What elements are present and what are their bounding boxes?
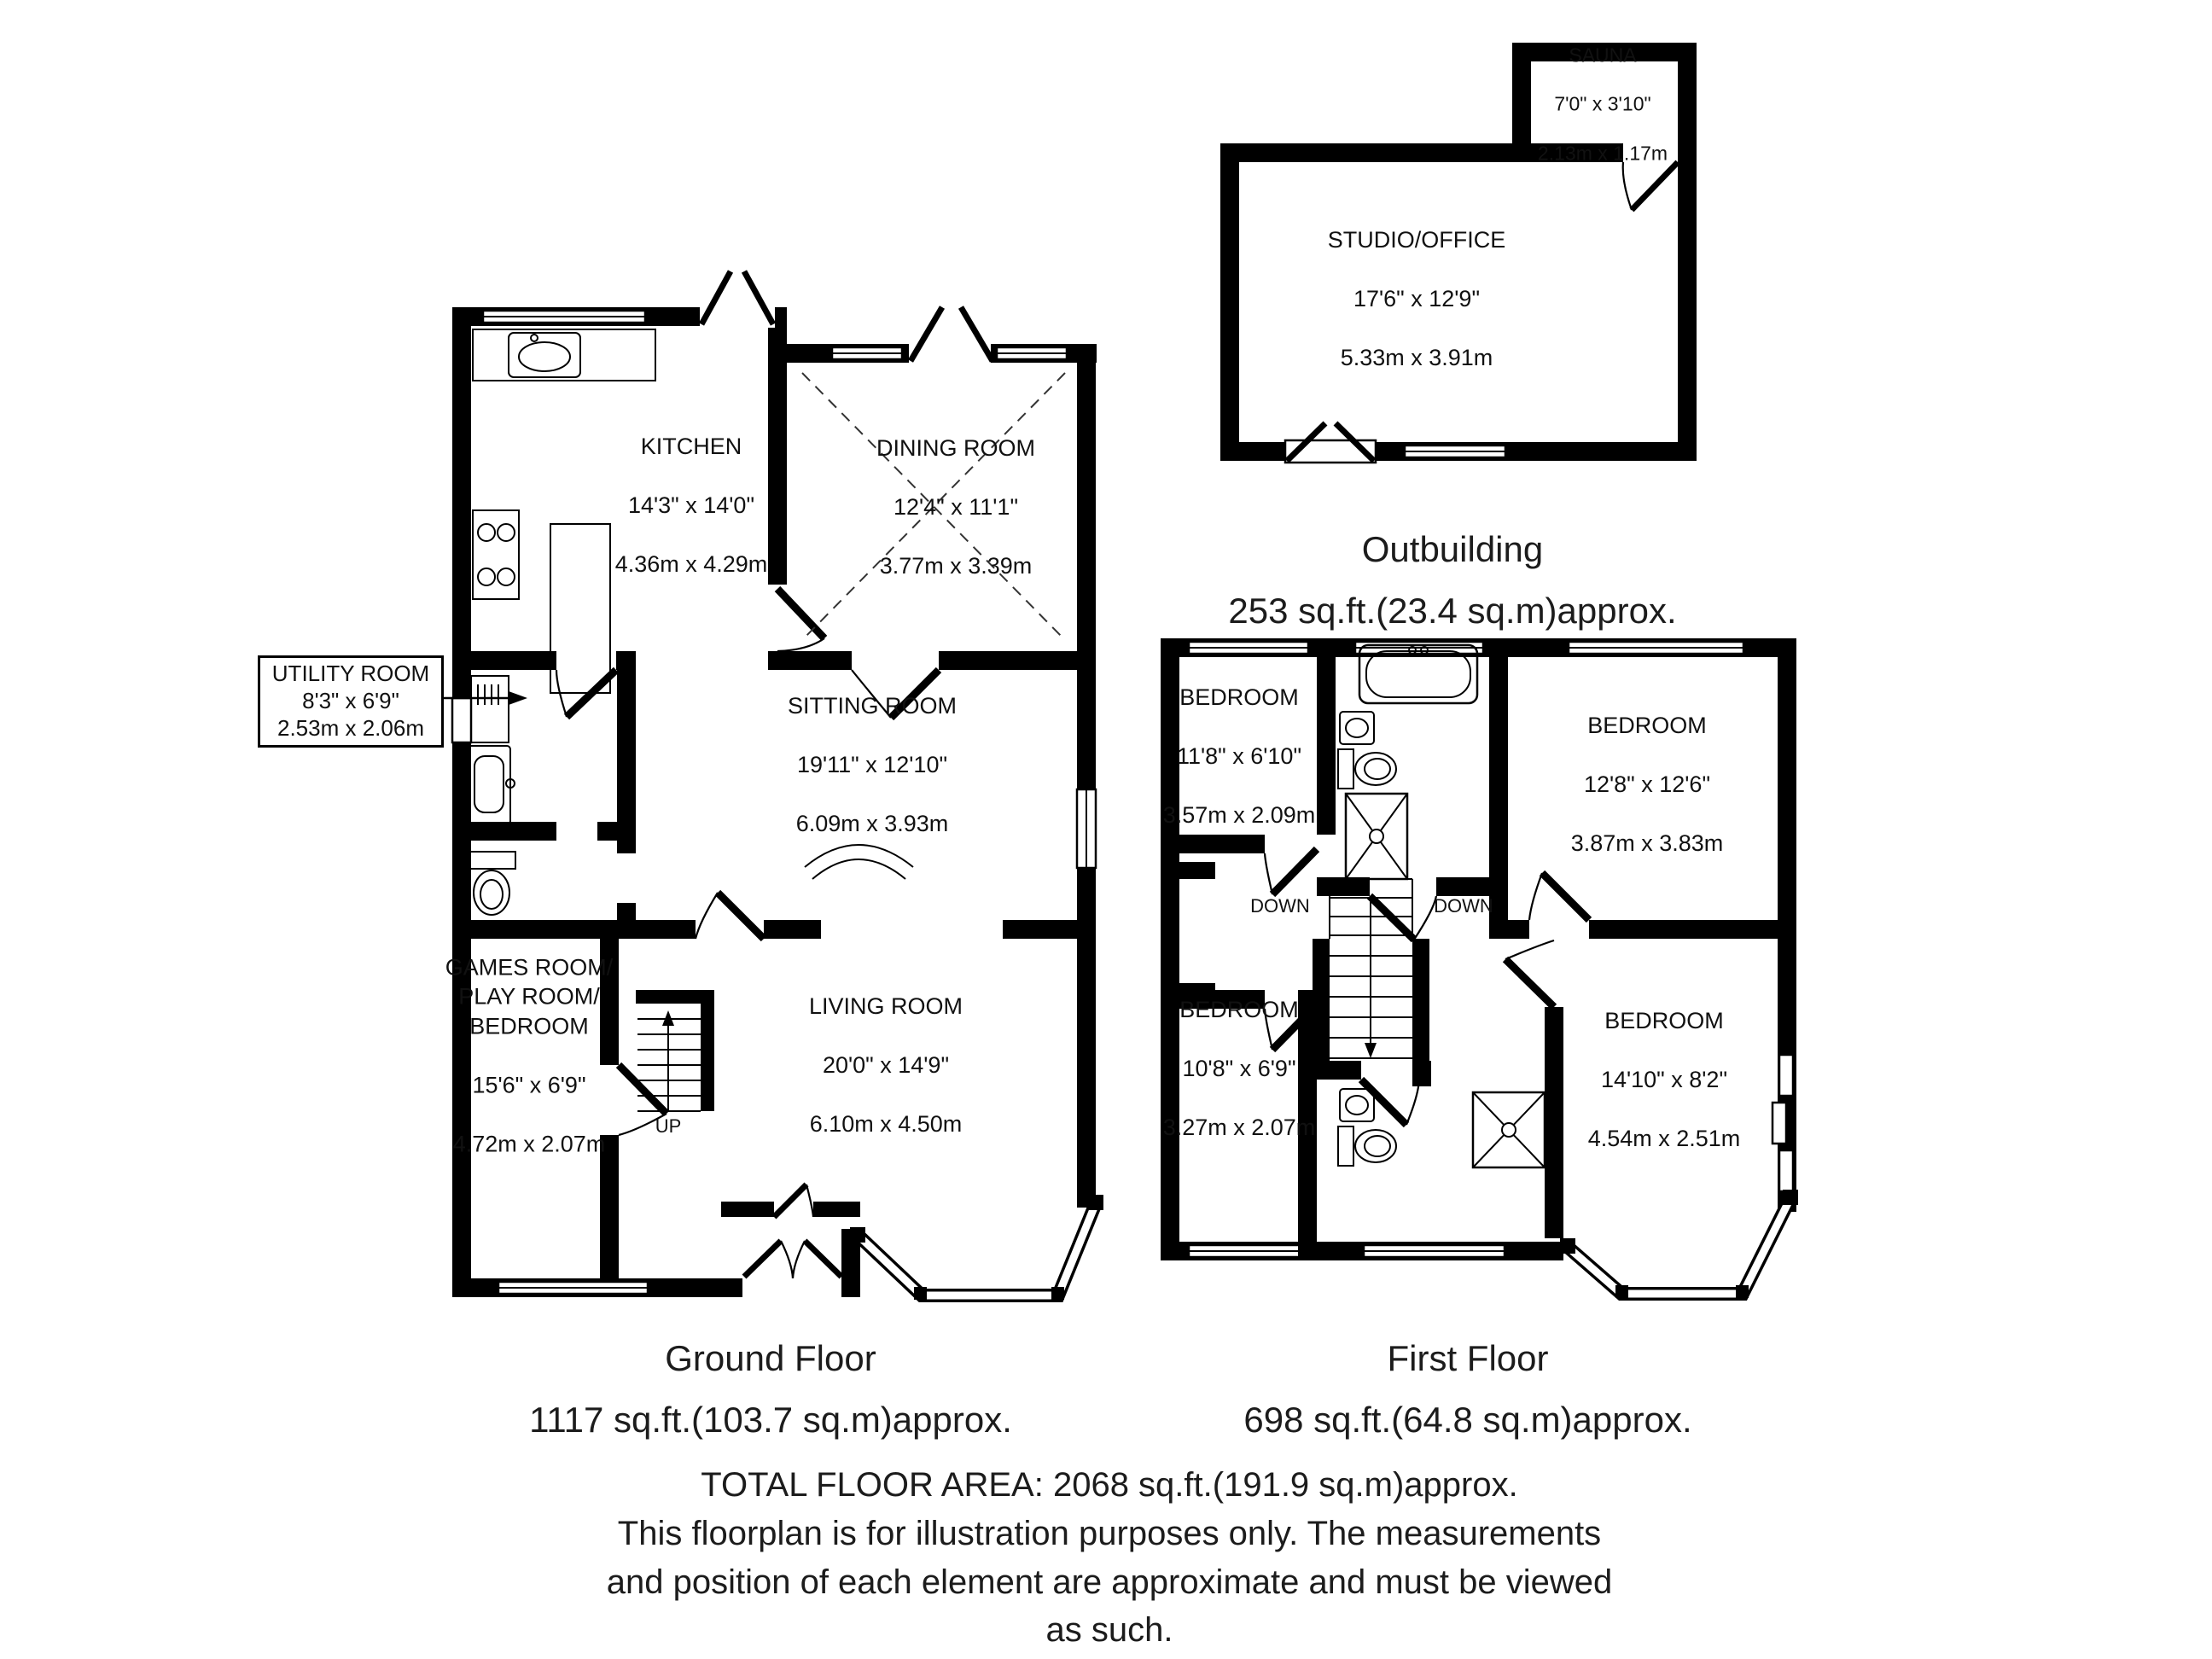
shower-room-sink-icon [1340, 1089, 1374, 1121]
room-label-living: LIVING ROOM 20'0" x 14'9" 6.10m x 4.50m [809, 962, 963, 1168]
room-label-bedroom-br: BEDROOM 14'10" x 8'2" 4.54m x 2.51m [1588, 976, 1741, 1183]
utility-room-callout: UTILITY ROOM 8'3" x 6'9" 2.53m x 2.06m [258, 655, 444, 748]
hob-icon [473, 510, 519, 599]
outbuilding-caption: Outbuilding 253 sq.ft.(23.4 sq.m)approx. [1228, 519, 1676, 642]
floorplan-canvas [0, 0, 2212, 1659]
room-label-bedroom-bl: BEDROOM 10'8" x 6'9" 3.27m x 2.07m [1163, 965, 1316, 1172]
kitchen-island [550, 524, 610, 693]
room-label-kitchen: KITCHEN 14'3" x 14'0" 4.36m x 4.29m [615, 402, 768, 608]
games-door-leaf [619, 1065, 667, 1114]
stairs-up-label: UP [655, 1115, 682, 1138]
room-label-bedroom-tr: BEDROOM 12'8" x 12'6" 3.87m x 3.83m [1571, 681, 1724, 888]
bedroom-tr-window [1569, 642, 1743, 654]
footer-disclaimer: TOTAL FLOOR AREA: 2068 sq.ft.(191.9 sq.m… [607, 1461, 1613, 1655]
bay-window-ground [850, 1195, 1103, 1300]
front-door-leaf [744, 1241, 781, 1277]
bedroom-br-door-leaf [1505, 959, 1554, 1007]
washer-icon [471, 676, 509, 742]
room-label-dining: DINING ROOM 12'4" x 11'1" 3.77m x 3.39m [876, 404, 1035, 610]
room-label-games: GAMES ROOM/ PLAY ROOM/ BEDROOM 15'6" x 6… [445, 923, 614, 1189]
bay-window-first [1560, 1190, 1798, 1298]
dining-window-left [832, 347, 902, 359]
stairs-down-label-left: DOWN [1250, 895, 1310, 917]
bedroom-tl-window [1189, 642, 1308, 654]
stairs-down-icon [1330, 879, 1412, 1058]
studio-window [1405, 445, 1505, 457]
room-label-studio: STUDIO/OFFICE 17'6" x 12'9" 5.33m x 3.91… [1328, 195, 1506, 402]
stairs-down-label-right: DOWN [1434, 895, 1493, 917]
bedroom-bl-window [1189, 1245, 1313, 1257]
room-label-bedroom-tl: BEDROOM 11'8" x 6'10" 3.57m x 2.09m [1163, 653, 1316, 859]
bathroom-toilet-icon [1338, 749, 1396, 789]
games-window [498, 1282, 648, 1294]
shower-room-toilet-icon [1338, 1126, 1396, 1166]
bathroom-door-leaf [1370, 896, 1414, 940]
kitchen-door-leaf [777, 589, 824, 638]
utility-sink-icon [468, 746, 515, 824]
kitchen-sink-icon [509, 333, 580, 377]
sitting-window [1077, 789, 1096, 868]
floorplan-page: KITCHEN 14'3" x 14'0" 4.36m x 4.29m DINI… [0, 0, 2212, 1659]
first-floor-caption: First Floor 698 sq.ft.(64.8 sq.m)approx. [1243, 1328, 1691, 1451]
dining-window-right [997, 347, 1067, 359]
shower-room-window [1364, 1245, 1505, 1257]
bathroom-shower-icon [1346, 794, 1407, 879]
room-label-sauna: SAUNA 7'0" x 3'10" 2.13m x 1.17m [1538, 18, 1668, 189]
utility-window [452, 698, 471, 742]
inner-door-leaf [774, 1185, 806, 1217]
toilet-icon [468, 852, 515, 915]
bathroom-sink-icon [1340, 712, 1374, 744]
kitchen-window [483, 311, 645, 323]
shower-icon [1473, 1092, 1545, 1167]
ground-floor-caption: Ground Floor 1117 sq.ft.(103.7 sq.m)appr… [529, 1328, 1012, 1451]
kitchen-counter [473, 329, 655, 381]
hall-door-leaf [718, 893, 764, 939]
room-label-sitting: SITTING ROOM 19'11" x 12'10" 6.09m x 3.9… [788, 661, 957, 868]
